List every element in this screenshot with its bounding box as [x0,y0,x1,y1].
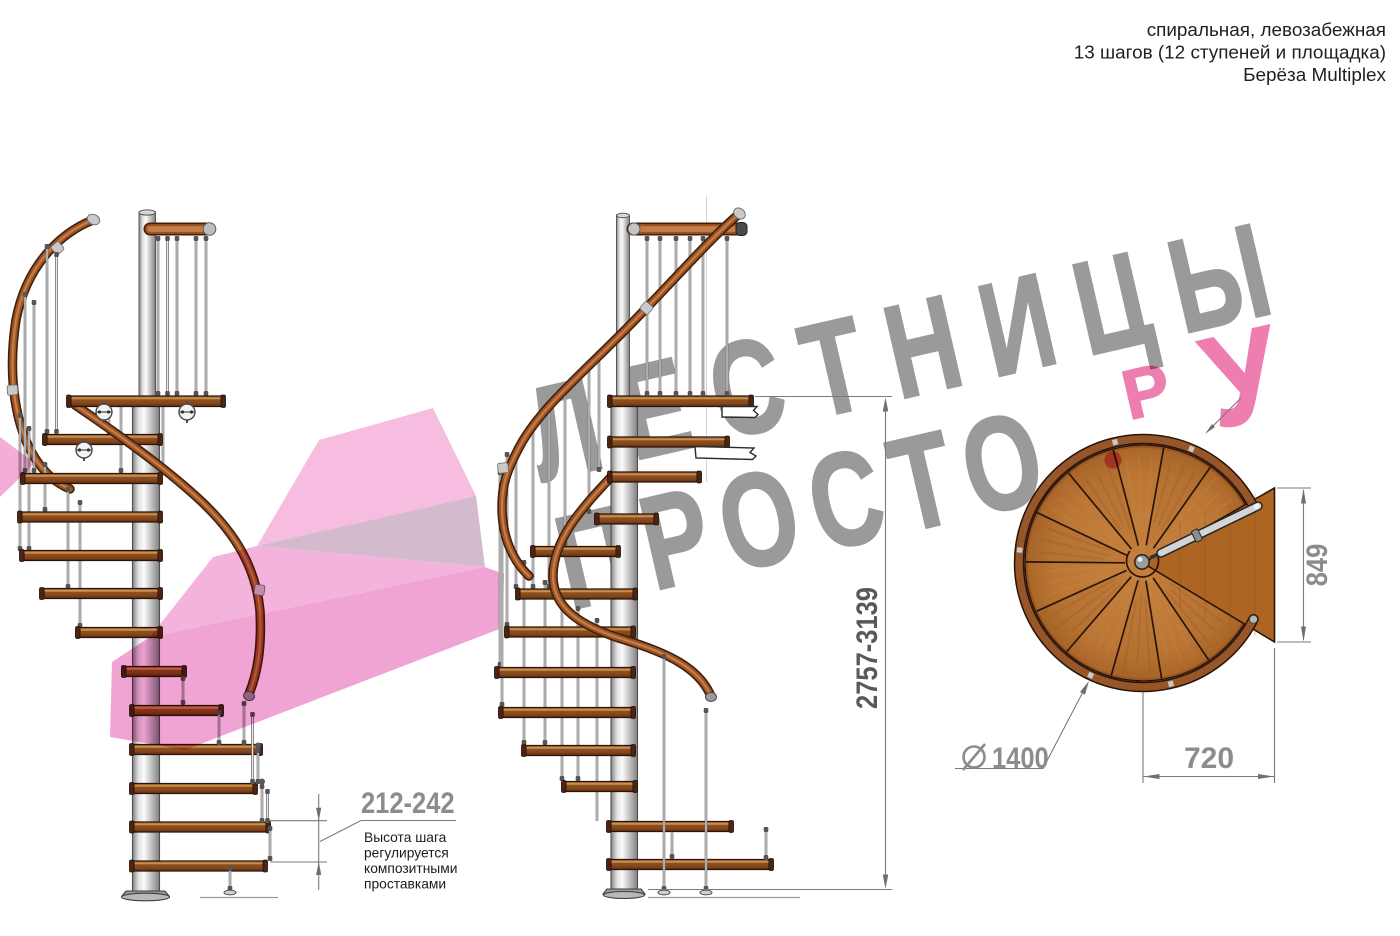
svg-text:Высота шага: Высота шага [364,830,447,845]
svg-text:212-242: 212-242 [361,786,455,819]
svg-text:13 шагов (12 ступеней и площад: 13 шагов (12 ступеней и площадка) [1074,42,1386,63]
svg-text:композитными: композитными [364,861,457,876]
svg-text:спиральная, левозабежная: спиральная, левозабежная [1147,20,1386,41]
svg-text:Берёза Multiplex: Берёза Multiplex [1243,65,1386,86]
svg-text:2757-3139: 2757-3139 [850,587,883,709]
svg-text:1400: 1400 [992,741,1049,774]
svg-text:проставками: проставками [364,877,446,892]
svg-text:регулируется: регулируется [364,846,449,861]
svg-text:849: 849 [1300,544,1333,587]
svg-text:720: 720 [1184,742,1234,775]
